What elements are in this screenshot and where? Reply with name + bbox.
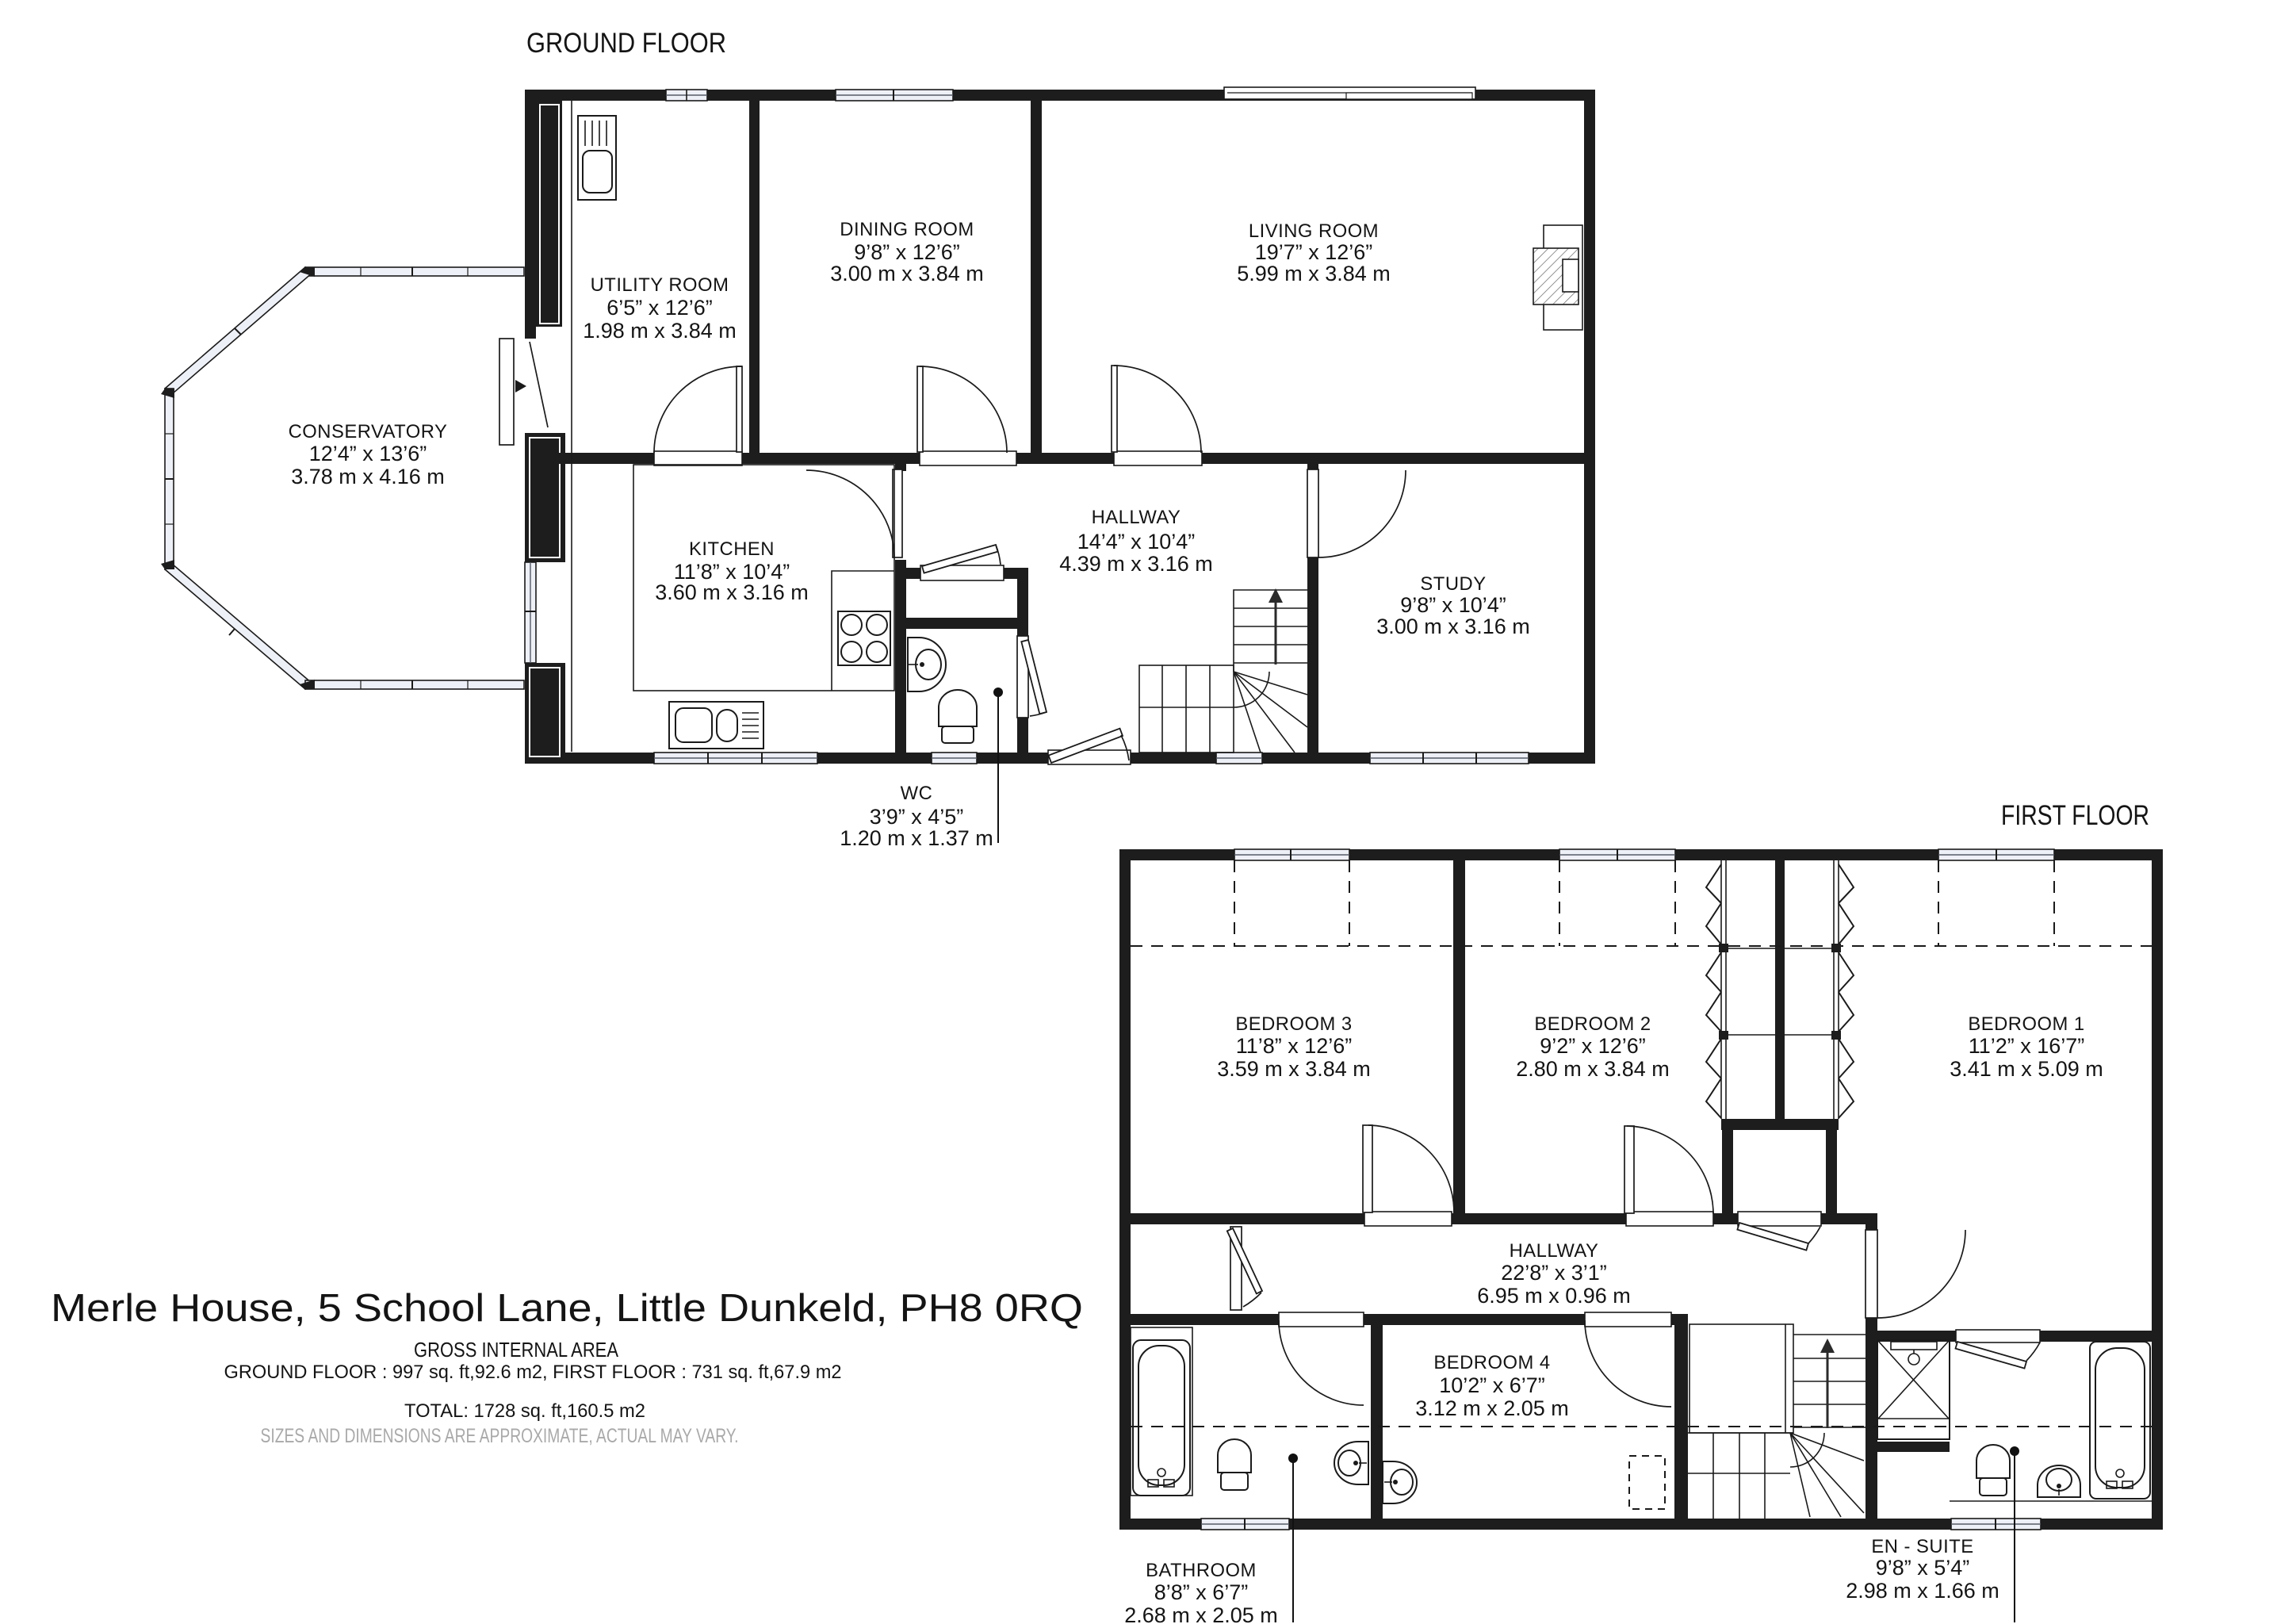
svg-text:3.00 m x 3.84 m: 3.00 m x 3.84 m bbox=[830, 262, 984, 285]
svg-text:LIVING ROOM: LIVING ROOM bbox=[1249, 220, 1379, 242]
svg-text:5.99 m x 3.84 m: 5.99 m x 3.84 m bbox=[1237, 262, 1391, 285]
svg-text:DINING ROOM: DINING ROOM bbox=[840, 219, 974, 240]
svg-text:TOTAL: 1728 sq. ft,160.5 m2: TOTAL: 1728 sq. ft,160.5 m2 bbox=[404, 1400, 645, 1422]
svg-text:BEDROOM 3: BEDROOM 3 bbox=[1235, 1013, 1352, 1035]
svg-text:1.98 m x 3.84 m: 1.98 m x 3.84 m bbox=[583, 319, 737, 343]
svg-text:1.20 m x 1.37 m: 1.20 m x 1.37 m bbox=[840, 826, 993, 850]
svg-text:3.59 m x 3.84 m: 3.59 m x 3.84 m bbox=[1217, 1057, 1371, 1081]
svg-text:BEDROOM 1: BEDROOM 1 bbox=[1968, 1013, 2084, 1035]
svg-text:8’8” x 6’7”: 8’8” x 6’7” bbox=[1154, 1580, 1249, 1604]
svg-text:WC: WC bbox=[901, 783, 933, 804]
svg-text:BEDROOM 4: BEDROOM 4 bbox=[1433, 1352, 1550, 1373]
svg-text:19’7” x 12’6”: 19’7” x 12’6” bbox=[1255, 240, 1373, 264]
svg-text:EN - SUITE: EN - SUITE bbox=[1871, 1536, 1973, 1557]
svg-text:2.68 m x 2.05 m: 2.68 m x 2.05 m bbox=[1124, 1603, 1278, 1624]
svg-text:3.60 m x 3.16 m: 3.60 m x 3.16 m bbox=[655, 580, 809, 604]
svg-text:3’9” x 4’5”: 3’9” x 4’5” bbox=[870, 805, 964, 829]
svg-text:3.41 m x 5.09 m: 3.41 m x 5.09 m bbox=[1950, 1057, 2103, 1081]
svg-text:BEDROOM 2: BEDROOM 2 bbox=[1534, 1013, 1651, 1035]
svg-text:SIZES AND DIMENSIONS ARE APPRO: SIZES AND DIMENSIONS ARE APPROXIMATE, AC… bbox=[261, 1425, 739, 1447]
svg-text:11’2” x 16’7”: 11’2” x 16’7” bbox=[1969, 1034, 2085, 1058]
svg-text:9’2” x 12’6”: 9’2” x 12’6” bbox=[1540, 1034, 1646, 1058]
svg-text:2.98 m x 1.66 m: 2.98 m x 1.66 m bbox=[1846, 1579, 1999, 1603]
svg-text:3.12 m x 2.05 m: 3.12 m x 2.05 m bbox=[1415, 1396, 1569, 1420]
svg-text:11’8” x 12’6”: 11’8” x 12’6” bbox=[1236, 1034, 1353, 1058]
svg-text:14’4” x 10’4”: 14’4” x 10’4” bbox=[1077, 530, 1196, 553]
svg-text:2.80 m x 3.84 m: 2.80 m x 3.84 m bbox=[1516, 1057, 1670, 1081]
svg-text:6’5” x 12’6”: 6’5” x 12’6” bbox=[607, 296, 713, 320]
svg-text:HALLWAY: HALLWAY bbox=[1510, 1240, 1599, 1262]
svg-text:GROUND FLOOR: GROUND FLOOR bbox=[526, 28, 726, 59]
svg-text:CONSERVATORY: CONSERVATORY bbox=[289, 421, 448, 442]
svg-text:3.78 m x 4.16 m: 3.78 m x 4.16 m bbox=[291, 465, 445, 488]
svg-text:9’8” x 10’4”: 9’8” x 10’4” bbox=[1400, 593, 1506, 617]
svg-text:6.95 m x 0.96 m: 6.95 m x 0.96 m bbox=[1477, 1284, 1631, 1308]
svg-text:BATHROOM: BATHROOM bbox=[1146, 1560, 1257, 1581]
svg-text:KITCHEN: KITCHEN bbox=[689, 538, 775, 560]
svg-text:Merle House, 5 School Lane, Li: Merle House, 5 School Lane, Little Dunke… bbox=[51, 1287, 1083, 1330]
svg-text:9’8” x 5’4”: 9’8” x 5’4” bbox=[1876, 1556, 1970, 1580]
svg-text:UTILITY ROOM: UTILITY ROOM bbox=[591, 274, 729, 296]
svg-text:3.00 m x 3.16 m: 3.00 m x 3.16 m bbox=[1376, 615, 1530, 638]
svg-text:GROUND FLOOR : 997 sq. ft,92.6: GROUND FLOOR : 997 sq. ft,92.6 m2, FIRST… bbox=[224, 1362, 842, 1383]
svg-text:HALLWAY: HALLWAY bbox=[1092, 507, 1181, 528]
svg-text:9’8” x 12’6”: 9’8” x 12’6” bbox=[854, 240, 960, 264]
svg-text:12’4” x 13’6”: 12’4” x 13’6” bbox=[309, 442, 427, 465]
svg-text:GROSS INTERNAL AREA: GROSS INTERNAL AREA bbox=[414, 1338, 619, 1362]
svg-text:FIRST FLOOR: FIRST FLOOR bbox=[2001, 800, 2149, 831]
svg-text:22’8” x 3’1”: 22’8” x 3’1” bbox=[1501, 1261, 1607, 1285]
svg-text:10’2” x 6’7”: 10’2” x 6’7” bbox=[1439, 1373, 1545, 1397]
svg-text:4.39 m x 3.16 m: 4.39 m x 3.16 m bbox=[1059, 552, 1213, 576]
svg-text:STUDY: STUDY bbox=[1420, 573, 1486, 595]
